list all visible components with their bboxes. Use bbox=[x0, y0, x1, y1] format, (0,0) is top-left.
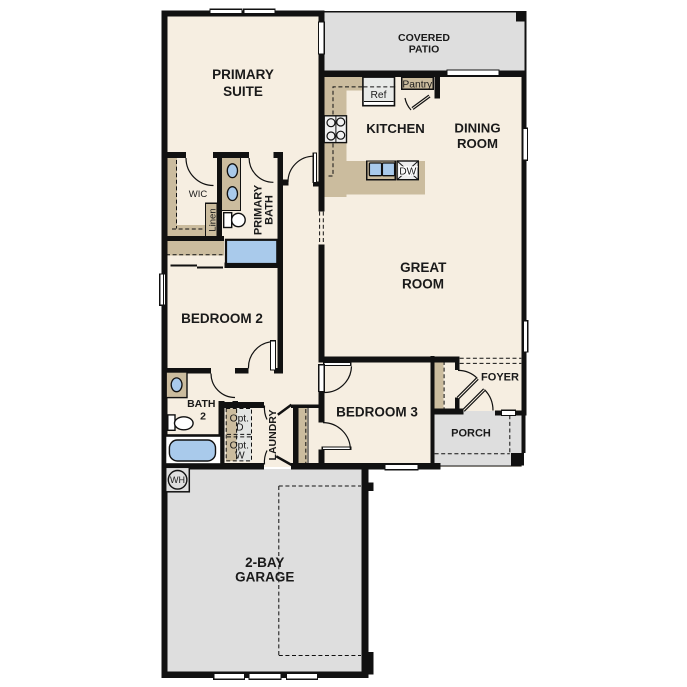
svg-text:D: D bbox=[236, 423, 243, 434]
svg-text:PATIO: PATIO bbox=[409, 44, 440, 56]
svg-text:BEDROOM 2: BEDROOM 2 bbox=[181, 311, 263, 326]
svg-text:PORCH: PORCH bbox=[451, 428, 491, 440]
svg-text:2-BAY: 2-BAY bbox=[245, 555, 284, 570]
svg-text:PRIMARY: PRIMARY bbox=[212, 67, 274, 82]
svg-text:SUITE: SUITE bbox=[223, 84, 263, 99]
svg-text:BATH: BATH bbox=[264, 195, 276, 225]
svg-text:COVERED: COVERED bbox=[398, 32, 450, 44]
svg-text:FOYER: FOYER bbox=[481, 371, 519, 383]
svg-text:DW: DW bbox=[399, 167, 416, 178]
svg-text:2: 2 bbox=[200, 411, 206, 423]
svg-text:Pantry: Pantry bbox=[402, 79, 433, 90]
svg-text:Ref: Ref bbox=[370, 90, 386, 101]
svg-text:ROOM: ROOM bbox=[457, 136, 498, 151]
svg-text:GARAGE: GARAGE bbox=[235, 570, 294, 585]
svg-text:LAUNDRY: LAUNDRY bbox=[267, 410, 279, 461]
svg-text:BATH: BATH bbox=[187, 398, 215, 410]
svg-text:W: W bbox=[235, 451, 245, 462]
svg-text:GREAT: GREAT bbox=[400, 260, 447, 275]
svg-text:BEDROOM 3: BEDROOM 3 bbox=[336, 405, 418, 420]
svg-text:WH: WH bbox=[170, 475, 185, 485]
svg-text:Linen: Linen bbox=[208, 208, 219, 231]
svg-text:WIC: WIC bbox=[189, 189, 208, 200]
svg-text:DINING: DINING bbox=[454, 121, 500, 136]
svg-text:ROOM: ROOM bbox=[402, 277, 444, 292]
svg-text:KITCHEN: KITCHEN bbox=[366, 121, 425, 136]
